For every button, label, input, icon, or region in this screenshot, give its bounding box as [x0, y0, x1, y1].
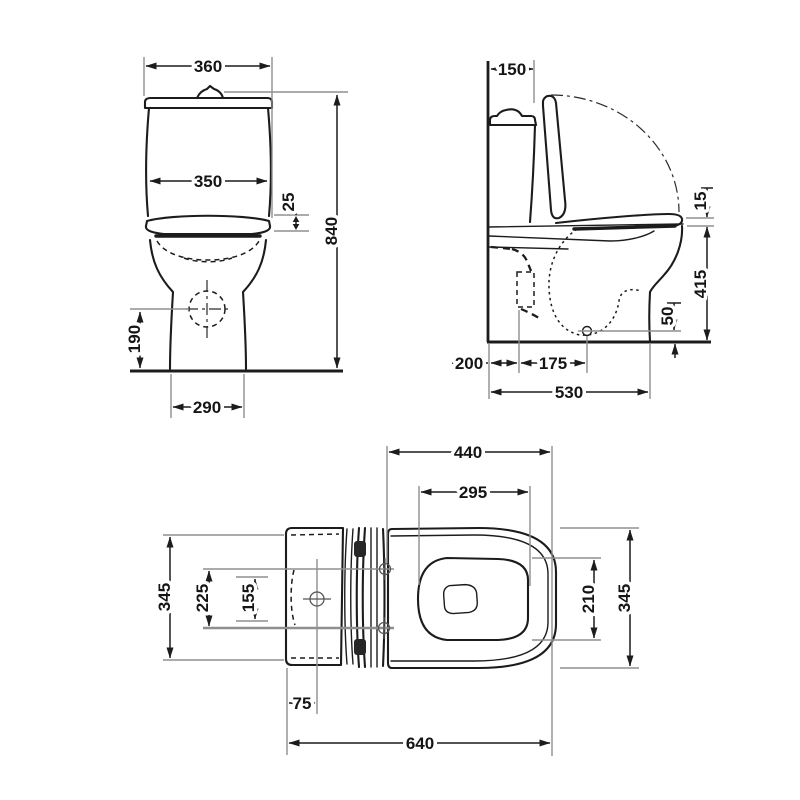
toilet-dimension-drawing: 360 350 25 840 190 290 — [0, 0, 800, 800]
dim-plan-opening-width: 210 — [579, 585, 598, 613]
plan-view: 440 295 345 225 155 210 345 75 640 — [155, 443, 639, 756]
side-fixing-bracket-hidden — [517, 272, 534, 307]
side-cistern-front — [530, 125, 535, 222]
plan-cistern-front-2 — [351, 529, 353, 664]
plan-seat-back-edge — [383, 529, 385, 666]
plan-cistern-front-1 — [345, 529, 347, 664]
plan-cistern — [286, 528, 343, 665]
dim-side-depth: 530 — [555, 383, 583, 402]
dim-plan-supply-offset: 75 — [293, 694, 312, 713]
dim-side-seat-thickness: 15 — [691, 192, 710, 211]
dim-25-arrow-up — [293, 216, 300, 222]
dim-front-seat-thickness: 25 — [279, 193, 298, 212]
dim-25-arrow-down — [293, 224, 300, 230]
front-cistern-left — [146, 108, 149, 216]
dim-front-foot-width: 290 — [193, 398, 221, 417]
plan-rim-outline — [391, 535, 548, 661]
dim-side-cistern-depth: 150 — [498, 60, 526, 79]
front-view: 360 350 25 840 190 290 — [125, 57, 348, 418]
side-seat-shadow — [574, 226, 675, 229]
dim-plan-fixing-inner: 155 — [239, 584, 258, 612]
front-lid-knob — [197, 86, 223, 98]
dim-plan-fixing-outer: 225 — [193, 584, 212, 612]
plan-hinge-damper-top — [354, 541, 366, 557]
dim-side-rim-height: 415 — [691, 270, 710, 298]
front-seat — [146, 216, 270, 234]
side-trap-hidden-3 — [521, 309, 542, 320]
dim-plan-overall-width: 345 — [615, 584, 634, 612]
dim-plan-cistern-width: 345 — [155, 583, 174, 611]
plan-cistern-hidden-left — [291, 570, 295, 625]
dim-front-overall-height: 840 — [322, 217, 341, 245]
dim-side-fixing-to-outlet: 175 — [539, 354, 567, 373]
dim-plan-hinge-to-front: 440 — [454, 443, 482, 462]
front-bowl-left — [150, 240, 173, 369]
dim-front-cistern-width: 350 — [194, 172, 222, 191]
side-rim-bottom — [489, 247, 568, 249]
drawing-canvas: 360 350 25 840 190 290 — [0, 0, 800, 800]
plan-water-spot — [443, 584, 478, 614]
dim-side-wall-to-fixing: 200 — [455, 354, 483, 373]
dim-front-lid-width: 360 — [194, 57, 222, 76]
plan-seat-outline — [388, 528, 556, 668]
side-view: 150 15 415 50 200 175 530 — [452, 60, 714, 402]
side-cistern-lid — [490, 109, 536, 125]
side-trap-hidden-2 — [512, 249, 531, 271]
plan-seat-opening — [418, 558, 528, 640]
side-lid-raised — [543, 96, 565, 218]
front-cistern-lid — [145, 98, 272, 108]
dim-plan-overall-length: 640 — [406, 734, 434, 753]
dim-side-outlet-height: 50 — [658, 307, 677, 326]
front-inner-rim-hidden — [157, 241, 259, 260]
side-bowl-cavity-hidden — [549, 229, 641, 335]
dim-plan-opening-length: 295 — [459, 483, 487, 502]
plan-hinge-damper-bottom — [354, 639, 366, 655]
plan-cistern-hidden-top — [291, 534, 339, 535]
front-bowl-right — [243, 240, 266, 369]
side-lid-swing-arc — [551, 95, 679, 212]
dim-front-outlet-height: 190 — [125, 325, 144, 353]
front-cistern-right — [268, 108, 271, 216]
